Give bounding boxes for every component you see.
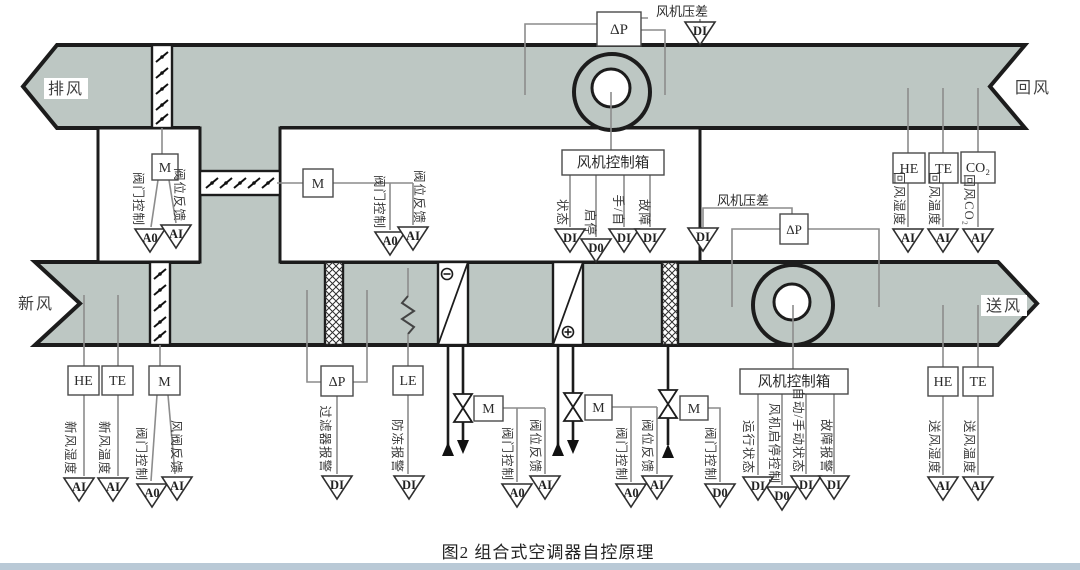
fresh-air-damper bbox=[150, 262, 170, 345]
ahu-control-diagram: M M M M M M ΔP ΔP ΔP LE HE TE CO₂ HE TE … bbox=[0, 0, 1080, 570]
dp-label: ΔP bbox=[786, 222, 802, 237]
mixing-damper bbox=[200, 171, 280, 195]
io-label: AI bbox=[169, 227, 183, 241]
signal-label: 过滤器报警 bbox=[318, 405, 333, 473]
signal-label: 风机启停控制 bbox=[767, 403, 782, 484]
flow-up-arrow bbox=[442, 442, 454, 456]
io-label: D0 bbox=[712, 486, 727, 500]
io-label: A0 bbox=[623, 486, 638, 500]
io-label: DI bbox=[402, 478, 416, 492]
humidifier-valve bbox=[659, 390, 677, 418]
io-label: AI bbox=[538, 478, 552, 492]
signal-label: 运行状态 bbox=[741, 420, 755, 474]
signal-label: 自动/手动状态 bbox=[791, 388, 805, 473]
actuator-label: M bbox=[312, 177, 325, 192]
signal-label: 防冻报警 bbox=[390, 419, 405, 473]
io-label: DI bbox=[693, 24, 707, 38]
cooling-coil bbox=[438, 262, 468, 345]
filter bbox=[325, 262, 343, 345]
signal-label: 阀门控制 bbox=[703, 427, 718, 481]
io-label: DI bbox=[799, 478, 813, 492]
io-label: DI bbox=[563, 231, 577, 245]
io-label: A0 bbox=[382, 234, 397, 248]
io-label: AI bbox=[971, 231, 985, 245]
actuator-label: M bbox=[159, 161, 172, 176]
wire bbox=[703, 208, 792, 227]
actuator-label: M bbox=[482, 402, 495, 417]
io-label: AI bbox=[170, 479, 184, 493]
signal-label: 回风CO₂ bbox=[962, 174, 976, 226]
exhaust-air-label: 排风 bbox=[48, 80, 84, 98]
io-label: DI bbox=[643, 231, 657, 245]
signal-label: 送风湿度 bbox=[927, 420, 942, 474]
te-label: TE bbox=[109, 374, 126, 389]
signal-label: 启停 bbox=[583, 209, 598, 236]
signal-label: 手/自 bbox=[611, 195, 625, 226]
signal-label: 阀门控制 bbox=[372, 175, 387, 229]
humidifier bbox=[662, 262, 678, 345]
heating-coil bbox=[553, 262, 583, 345]
signal-label: 回风湿度 bbox=[892, 172, 907, 226]
signal-label: 阀门控制 bbox=[134, 427, 149, 481]
fan-dp-label: 风机压差 bbox=[656, 4, 708, 19]
io-label: DI bbox=[330, 478, 344, 492]
signal-label: 阀门控制 bbox=[500, 427, 515, 481]
heating-valve bbox=[564, 393, 582, 421]
io-label: A0 bbox=[142, 231, 157, 245]
io-label: D0 bbox=[774, 489, 789, 503]
io-label: A0 bbox=[144, 486, 159, 500]
wire bbox=[151, 395, 157, 481]
exhaust-return-duct bbox=[23, 45, 1025, 128]
flow-down-arrow bbox=[567, 440, 579, 454]
exhaust-fan bbox=[574, 54, 650, 130]
io-label: AI bbox=[406, 229, 420, 243]
signal-label: 阀门控制 bbox=[614, 427, 629, 481]
io-label: A0 bbox=[509, 486, 524, 500]
signal-label: 阀位反馈 bbox=[528, 419, 543, 473]
flow-up-arrow bbox=[552, 442, 564, 456]
he-label: HE bbox=[74, 374, 93, 389]
signal-label: 送风温度 bbox=[962, 420, 977, 474]
signal-label: 阀位反馈 bbox=[412, 170, 427, 224]
supply-air-label: 送风 bbox=[986, 297, 1022, 315]
signal-label: 阀门控制 bbox=[131, 172, 146, 226]
actuator-label: M bbox=[158, 375, 171, 390]
io-label: AI bbox=[650, 478, 664, 492]
signal-label: 回风温度 bbox=[927, 172, 942, 226]
actuator-label: M bbox=[688, 402, 701, 417]
fresh-supply-duct bbox=[35, 262, 1037, 345]
fan-dp-label: 风机压差 bbox=[717, 193, 769, 208]
io-label: D0 bbox=[588, 241, 603, 255]
io-label: DI bbox=[827, 478, 841, 492]
flow-down-arrow bbox=[457, 440, 469, 454]
signal-label: 阀位反馈 bbox=[640, 419, 655, 473]
fan-control-box-label: 风机控制箱 bbox=[577, 155, 650, 172]
io-label: DI bbox=[696, 230, 710, 244]
io-label: AI bbox=[936, 231, 950, 245]
io-label: AI bbox=[72, 480, 86, 494]
io-label: AI bbox=[971, 479, 985, 493]
te-label: TE bbox=[969, 375, 986, 390]
io-label: DI bbox=[617, 231, 631, 245]
figure-caption: 图2 组合式空调器自控原理 bbox=[442, 543, 655, 562]
exhaust-damper bbox=[152, 45, 172, 128]
signal-label: 故障 bbox=[637, 199, 652, 226]
signal-label: 阀位反馈 bbox=[172, 168, 187, 222]
io-label: AI bbox=[901, 231, 915, 245]
signal-label: 风阀反馈 bbox=[169, 420, 183, 474]
signal-label: 故障报警 bbox=[819, 419, 834, 473]
diagram-canvas: M M M M M M ΔP ΔP ΔP LE HE TE CO₂ HE TE … bbox=[0, 0, 1080, 570]
cooling-valve bbox=[454, 394, 472, 422]
signal-label: 新风温度 bbox=[97, 421, 112, 475]
io-label: AI bbox=[936, 479, 950, 493]
le-label: LE bbox=[399, 374, 416, 389]
footer-bar bbox=[0, 563, 1080, 570]
flow-up-arrow bbox=[662, 444, 674, 458]
io-label: AI bbox=[106, 480, 120, 494]
he-label: HE bbox=[934, 375, 953, 390]
io-label: DI bbox=[751, 479, 765, 493]
signal-label: 状态 bbox=[555, 199, 569, 226]
fresh-air-label: 新风 bbox=[18, 295, 54, 313]
dp-label: ΔP bbox=[610, 22, 628, 38]
panel-center bbox=[280, 128, 700, 262]
signal-label: 新风湿度 bbox=[63, 421, 78, 475]
return-air-label: 回风 bbox=[1015, 80, 1051, 97]
dp-label: ΔP bbox=[329, 375, 346, 390]
actuator-label: M bbox=[592, 401, 605, 416]
